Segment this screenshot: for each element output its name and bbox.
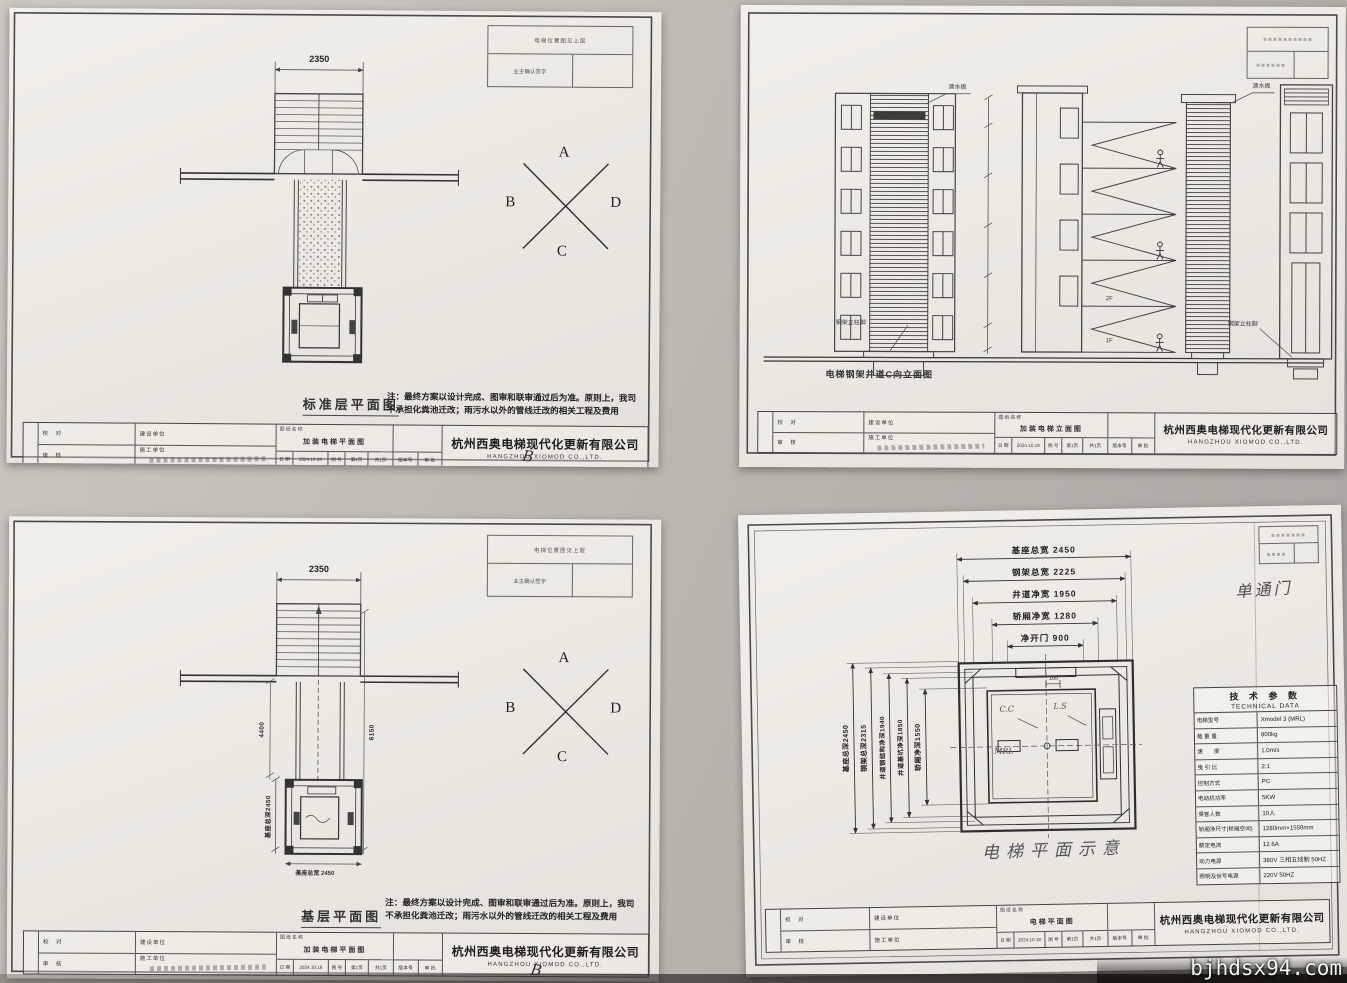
tech-label: 轿厢净尺寸(轿厢空间) bbox=[1196, 821, 1259, 837]
drawing-name: 加装电梯立面图 bbox=[995, 421, 1107, 437]
tech-value: 1280mm×1550mm bbox=[1259, 820, 1338, 836]
builder-label: 施工单位 bbox=[140, 953, 166, 961]
corner-approval-table bbox=[1258, 525, 1319, 564]
company-name-en: HANGZHOU XIOMOD CO.,LTD. bbox=[1188, 439, 1304, 445]
version-label: 版本号 bbox=[1108, 438, 1132, 453]
sheet-elevator-plan-schematic: 单通门 基座总宽 2450 钢架总宽 2225 井道净宽 1950 轿厢净宽 1… bbox=[738, 505, 1347, 977]
builder-label: 施工单位 bbox=[870, 927, 996, 950]
direction-letter-a: A bbox=[559, 145, 570, 162]
sheet-border bbox=[747, 13, 1337, 455]
title-block: 校 对 审 核 建设单位 施工单位 图纸名称 加装电梯立面图 日 期 2024.… bbox=[757, 411, 1337, 455]
drip-plate-label-right: 滴水板 bbox=[1253, 81, 1271, 90]
illegible-text bbox=[1257, 63, 1285, 66]
sheet-no-label: 图 号 bbox=[329, 960, 346, 975]
sheet-standard-floor-plan: 电梯位置图见上层 业主确认签字 2350 A B C D 标准层平面图 注：最终… bbox=[6, 8, 661, 468]
technical-data-table: 技 术 参 数 TECHNICAL DATA 电梯型号Xmodel 3 (MRL… bbox=[1193, 685, 1340, 885]
plan-caption: 基层平面图 bbox=[301, 906, 381, 928]
date-value: 2024.10.18 bbox=[294, 960, 329, 975]
steel-shaft-column bbox=[890, 91, 1293, 374]
dim-door-opening: 净开门 900 bbox=[1021, 632, 1070, 645]
owner-label: 建设单位 bbox=[870, 906, 996, 930]
owner-sign-blank bbox=[572, 564, 632, 597]
note-line-2: 不承担化粪池迁改；雨污水以外的管线迁改的相关工程及费用 bbox=[385, 909, 634, 923]
shaft-plan bbox=[948, 652, 1143, 839]
tech-value: PC bbox=[1259, 773, 1338, 789]
date-label: 日 期 bbox=[995, 438, 1012, 453]
column-foot-label-left: 钢架立柱脚 bbox=[836, 317, 866, 326]
illegible-text bbox=[1264, 38, 1312, 41]
date-row: 日 期 2024.10.18 图 号 第1页 共1页 bbox=[995, 437, 1107, 453]
builder-label: 施工单位 bbox=[868, 433, 894, 441]
date-value: 2024.10.18 bbox=[1014, 932, 1045, 948]
sheet-no-label: 图 号 bbox=[1045, 932, 1062, 947]
date-row: 日 期 2024.10.18 图 号 第1页 共1页 bbox=[997, 930, 1107, 948]
elevator-tower-right bbox=[1280, 85, 1333, 379]
review-label: 审 核 bbox=[38, 444, 134, 465]
tech-label: 照明及信号电源 bbox=[1197, 868, 1260, 884]
tech-label: 速 度 bbox=[1195, 743, 1258, 759]
review-label: 审 核 bbox=[39, 953, 135, 974]
owner-sign-label: 业主确认签字 bbox=[488, 54, 573, 88]
company-name-en: HANGZHOU XIOMOD CO.,LTD. bbox=[1184, 927, 1300, 935]
dim-pit-clear-depth: 井道基坑净深1850 bbox=[895, 719, 905, 776]
direction-letter-a: A bbox=[558, 650, 569, 667]
corridor bbox=[296, 682, 345, 780]
note-line-2: 不承担化粪池迁改；雨污水以外的管线迁改的相关工程及费用 bbox=[387, 403, 636, 418]
version-label: 版本号 bbox=[1108, 930, 1132, 945]
title-block: 校 对 审 核 建设单位 施工单位 图纸名称 加装电梯平面图 日 期 2024.… bbox=[22, 422, 648, 467]
date-label: 日 期 bbox=[276, 452, 293, 467]
approval-row-2 bbox=[1260, 544, 1295, 564]
section-dim-line bbox=[984, 95, 993, 354]
tech-label: 曳 引 比 bbox=[1195, 759, 1258, 775]
company-name-cn: 杭州西奥电梯现代化更新有限公司 bbox=[452, 942, 640, 960]
label-mrl: MRL bbox=[994, 747, 1014, 756]
blank-cell bbox=[1108, 903, 1154, 930]
stairwell bbox=[274, 94, 363, 175]
floor-label-2f: 2F bbox=[1106, 296, 1113, 302]
builder-cell: 施工单位 bbox=[135, 445, 275, 466]
owner-label: 建设单位 bbox=[136, 932, 276, 954]
company-name-cn: 杭州西奥电梯现代化更新有限公司 bbox=[1160, 910, 1325, 928]
tech-label: 乘客人数 bbox=[1196, 806, 1259, 822]
design-notes: 注：最终方案以设计完成、图审和联审通过后为准。原则上，我司 不承担化粪池迁改；雨… bbox=[385, 896, 634, 923]
approval-row-2 bbox=[1248, 51, 1295, 79]
check-label: 校 对 bbox=[773, 412, 863, 433]
handwritten-builder-name bbox=[878, 443, 985, 450]
tech-title-en: TECHNICAL DATA bbox=[1194, 702, 1336, 711]
builder-cell: 施工单位 bbox=[864, 433, 994, 453]
tech-value: 2:1 bbox=[1258, 758, 1337, 774]
stairwell bbox=[276, 604, 361, 780]
owner-label: 建设单位 bbox=[864, 412, 994, 433]
page-label: 第1页 bbox=[346, 960, 369, 975]
company-name-en: HANGZHOU XIOMOD CO.,LTD. bbox=[487, 454, 603, 461]
illegible-text bbox=[1266, 552, 1286, 555]
company-cell: 杭州西奥电梯现代化更新有限公司 HANGZHOU XIOMOD CO.,LTD. bbox=[443, 934, 648, 977]
dim-2350-lines bbox=[277, 572, 361, 606]
tech-row-lighting-supply: 照明及信号电源220V 50HZ bbox=[1197, 867, 1339, 884]
approve-label: 审 批 bbox=[1132, 930, 1155, 945]
company-cell: 杭州西奥电梯现代化更新有限公司 HANGZHOU XIOMOD CO.,LTD. bbox=[1155, 413, 1336, 454]
review-label: 审 核 bbox=[781, 930, 869, 952]
tech-value: 800kg bbox=[1258, 726, 1337, 742]
corner-approval-table bbox=[1247, 27, 1329, 79]
tech-value: Xmodel 3 (MRL) bbox=[1258, 711, 1337, 727]
direction-letter-b: B bbox=[505, 194, 515, 211]
label-cc: C.C bbox=[999, 705, 1014, 714]
drawing-name: 加装电梯平面图 bbox=[277, 941, 393, 960]
drawing-name: 电梯平面图 bbox=[997, 912, 1107, 932]
sheet-no-label: 图 号 bbox=[1045, 438, 1062, 453]
design-notes: 注：最终方案以设计完成、图审和联审通过后为准。原则上，我司 不承担化粪池迁改；雨… bbox=[387, 390, 636, 418]
builder-cell: 施工单位 bbox=[136, 953, 276, 974]
version-row: 版本号 审 批 bbox=[393, 451, 441, 467]
version-label: 版本号 bbox=[393, 452, 418, 467]
tech-label: 动力电源 bbox=[1197, 853, 1260, 869]
direction-letter-b: B bbox=[505, 700, 515, 717]
dim-car-clear-width: 轿厢净宽 1280 bbox=[1013, 609, 1077, 622]
dim-car-clear-depth: 轿厢净深1550 bbox=[913, 723, 924, 771]
handwritten-door-type: 单通门 bbox=[1235, 574, 1294, 602]
corridor-hatched bbox=[294, 180, 347, 288]
title-block: 校 对 审 核 建设单位 施工单位 图纸名称 加装电梯平面图 日 期 2024.… bbox=[23, 930, 649, 977]
dim-2350: 2350 bbox=[309, 54, 329, 64]
illegible-text bbox=[1271, 533, 1306, 537]
builder-label: 施工单位 bbox=[139, 445, 165, 453]
owner-confirm-table: 电梯位置图见上层 业主确认签字 bbox=[487, 25, 633, 88]
ground-line bbox=[764, 357, 1324, 363]
company-name-cn: 杭州西奥电梯现代化更新有限公司 bbox=[1163, 422, 1328, 438]
approval-blank bbox=[1295, 51, 1328, 79]
check-label: 校 对 bbox=[39, 423, 135, 445]
tech-value: 5KW bbox=[1259, 789, 1338, 805]
watermark: bjhdsx94.com bbox=[1190, 956, 1342, 980]
sheet-shaft-elevation: 滴水板 滴水板 钢架立柱脚 钢架立柱脚 2F 1F 电梯钢架井道C向立面图 校 … bbox=[739, 5, 1346, 469]
version-row: 版本号 审 批 bbox=[1108, 929, 1154, 946]
section-shaft-tower bbox=[1017, 86, 1088, 352]
blank-cell bbox=[394, 425, 442, 451]
photo-of-elevator-drawings: 电梯位置图见上层 业主确认签字 2350 A B C D 标准层平面图 注：最终… bbox=[0, 0, 1347, 983]
tech-table-header: 技 术 参 数 TECHNICAL DATA bbox=[1194, 686, 1336, 713]
dim-frame-width: 钢架总宽 2225 bbox=[1012, 565, 1076, 578]
direction-letter-c: C bbox=[557, 749, 567, 766]
plan-caption: 标准层平面图 bbox=[303, 394, 399, 417]
date-value: 2024.10.18 bbox=[293, 452, 328, 467]
title-block-margin bbox=[23, 423, 38, 465]
floor-label-1f: 1F bbox=[1106, 338, 1113, 344]
people-figures bbox=[1156, 150, 1165, 351]
approval-row-1 bbox=[1248, 28, 1328, 52]
title-block-margin bbox=[758, 412, 773, 452]
dim-shaft-depth: 基座总深2450 bbox=[263, 795, 272, 838]
dim-base-depth: 基座总深2450 bbox=[841, 725, 852, 773]
drawing-name: 加装电梯平面图 bbox=[277, 433, 393, 452]
dim-base-width: 基座总宽 2450 bbox=[1011, 543, 1075, 556]
direction-letter-d: D bbox=[610, 700, 621, 717]
page-label: 第1页 bbox=[1062, 438, 1083, 453]
company-name-en: HANGZHOU XIOMOD CO.,LTD. bbox=[487, 961, 603, 968]
tech-label: 控制方式 bbox=[1196, 775, 1259, 791]
check-label: 校 对 bbox=[781, 908, 869, 931]
owner-sign-blank bbox=[573, 55, 633, 88]
pages-label: 共1页 bbox=[1083, 931, 1107, 946]
dim-4400: 4400 bbox=[259, 722, 266, 738]
landing-walls bbox=[180, 670, 458, 687]
check-label: 校 对 bbox=[39, 931, 135, 953]
dim-6150: 6150 bbox=[369, 724, 376, 740]
blank-cell bbox=[1108, 413, 1154, 437]
stair-section bbox=[1082, 122, 1177, 352]
title-block-margin bbox=[24, 931, 39, 973]
elevator-shaft-plan bbox=[285, 780, 361, 854]
title-block-margin bbox=[766, 910, 782, 952]
tech-value: 12.6A bbox=[1260, 836, 1339, 852]
dim-shaft-width: 基座总宽 2450 bbox=[295, 868, 334, 877]
dim-frame-depth: 钢架总深2315 bbox=[859, 724, 870, 772]
date-label: 日 期 bbox=[277, 960, 294, 975]
review-label: 审 核 bbox=[773, 433, 863, 453]
dim-100: 100 bbox=[1049, 676, 1058, 682]
tech-value: 10人 bbox=[1259, 804, 1338, 820]
dim-2350: 2350 bbox=[309, 564, 329, 574]
note-line-1: 注：最终方案以设计完成、图审和联审通过后为准。原则上，我司 bbox=[385, 896, 634, 910]
page-label: 第1页 bbox=[345, 452, 368, 467]
confirm-table-title: 电梯位置图见上层 bbox=[488, 536, 632, 565]
page-label: 第1页 bbox=[1062, 931, 1083, 946]
date-label: 日 期 bbox=[997, 933, 1014, 948]
direction-mark-cross bbox=[523, 163, 609, 249]
dim-steel-clear-depth: 井道钢结构净深1940 bbox=[877, 716, 887, 780]
column-foot-label-right: 钢架立柱脚 bbox=[1228, 319, 1258, 328]
dim-shaft-clear-width: 井道净宽 1950 bbox=[1012, 587, 1076, 600]
direction-letter-c: C bbox=[557, 244, 567, 261]
date-row: 日 期 2024.10.18 图 号 第1页 共1页 bbox=[277, 959, 393, 976]
pages-label: 共1页 bbox=[1083, 438, 1107, 453]
version-row: 版本号 审 批 bbox=[1108, 437, 1154, 453]
company-cell: 杭州西奥电梯现代化更新有限公司 HANGZHOU XIOMOD CO.,LTD. bbox=[442, 426, 647, 468]
sheet-no-label: 图 号 bbox=[328, 452, 345, 467]
handwritten-plan-caption: 电梯平面示意 bbox=[981, 833, 1126, 863]
direction-mark-cross bbox=[523, 669, 608, 754]
owner-sign-label: 业主确认签字 bbox=[488, 564, 573, 597]
blank-cell bbox=[394, 933, 442, 959]
elevation-caption: 电梯钢架井道C向立面图 bbox=[825, 367, 933, 380]
pages-label: 共1页 bbox=[368, 452, 392, 467]
date-value: 2024.10.18 bbox=[1012, 438, 1045, 453]
handwritten-builder-name bbox=[150, 964, 266, 971]
approve-label: 审 批 bbox=[1132, 438, 1155, 453]
label-ls: L.S bbox=[1053, 702, 1066, 711]
tech-label: 电梯型号 bbox=[1195, 712, 1258, 728]
tech-title-cn: 技 术 参 数 bbox=[1194, 688, 1336, 703]
confirm-table-title: 电梯位置图见上层 bbox=[488, 26, 632, 55]
tech-label: 额定电流 bbox=[1197, 837, 1260, 853]
approval-blank bbox=[1294, 543, 1318, 563]
approve-label: 审 批 bbox=[418, 453, 442, 468]
drip-plate-label-left: 滴水板 bbox=[949, 82, 967, 91]
company-cell: 杭州西奥电梯现代化更新有限公司 HANGZHOU XIOMOD CO.,LTD. bbox=[1155, 900, 1330, 945]
handwritten-builder-name bbox=[150, 456, 266, 463]
company-name-cn: 杭州西奥电梯现代化更新有限公司 bbox=[451, 434, 639, 452]
tech-label: 电动机功率 bbox=[1196, 790, 1259, 806]
tech-label: 载 重 量 bbox=[1195, 728, 1258, 744]
date-row: 日 期 2024.10.18 图 号 第1页 共1页 bbox=[276, 451, 392, 468]
sheet-base-floor-plan: 电梯位置图见上层 业主确认签字 2350 4400 6150 基座总深2450 … bbox=[7, 516, 661, 981]
approval-row-1 bbox=[1259, 526, 1317, 544]
elevator-shaft-plan bbox=[283, 288, 362, 363]
tech-value: 1.0m/s bbox=[1258, 742, 1337, 758]
dim-2350-lines bbox=[275, 62, 363, 95]
tech-value: 220V 50HZ bbox=[1260, 867, 1339, 883]
direction-letter-d: D bbox=[610, 195, 621, 212]
owner-label: 建设单位 bbox=[136, 424, 276, 446]
tech-value: 380V 三相五线制 50HZ bbox=[1260, 851, 1339, 867]
owner-confirm-table: 电梯位置图见上层 业主确认签字 bbox=[487, 535, 633, 598]
